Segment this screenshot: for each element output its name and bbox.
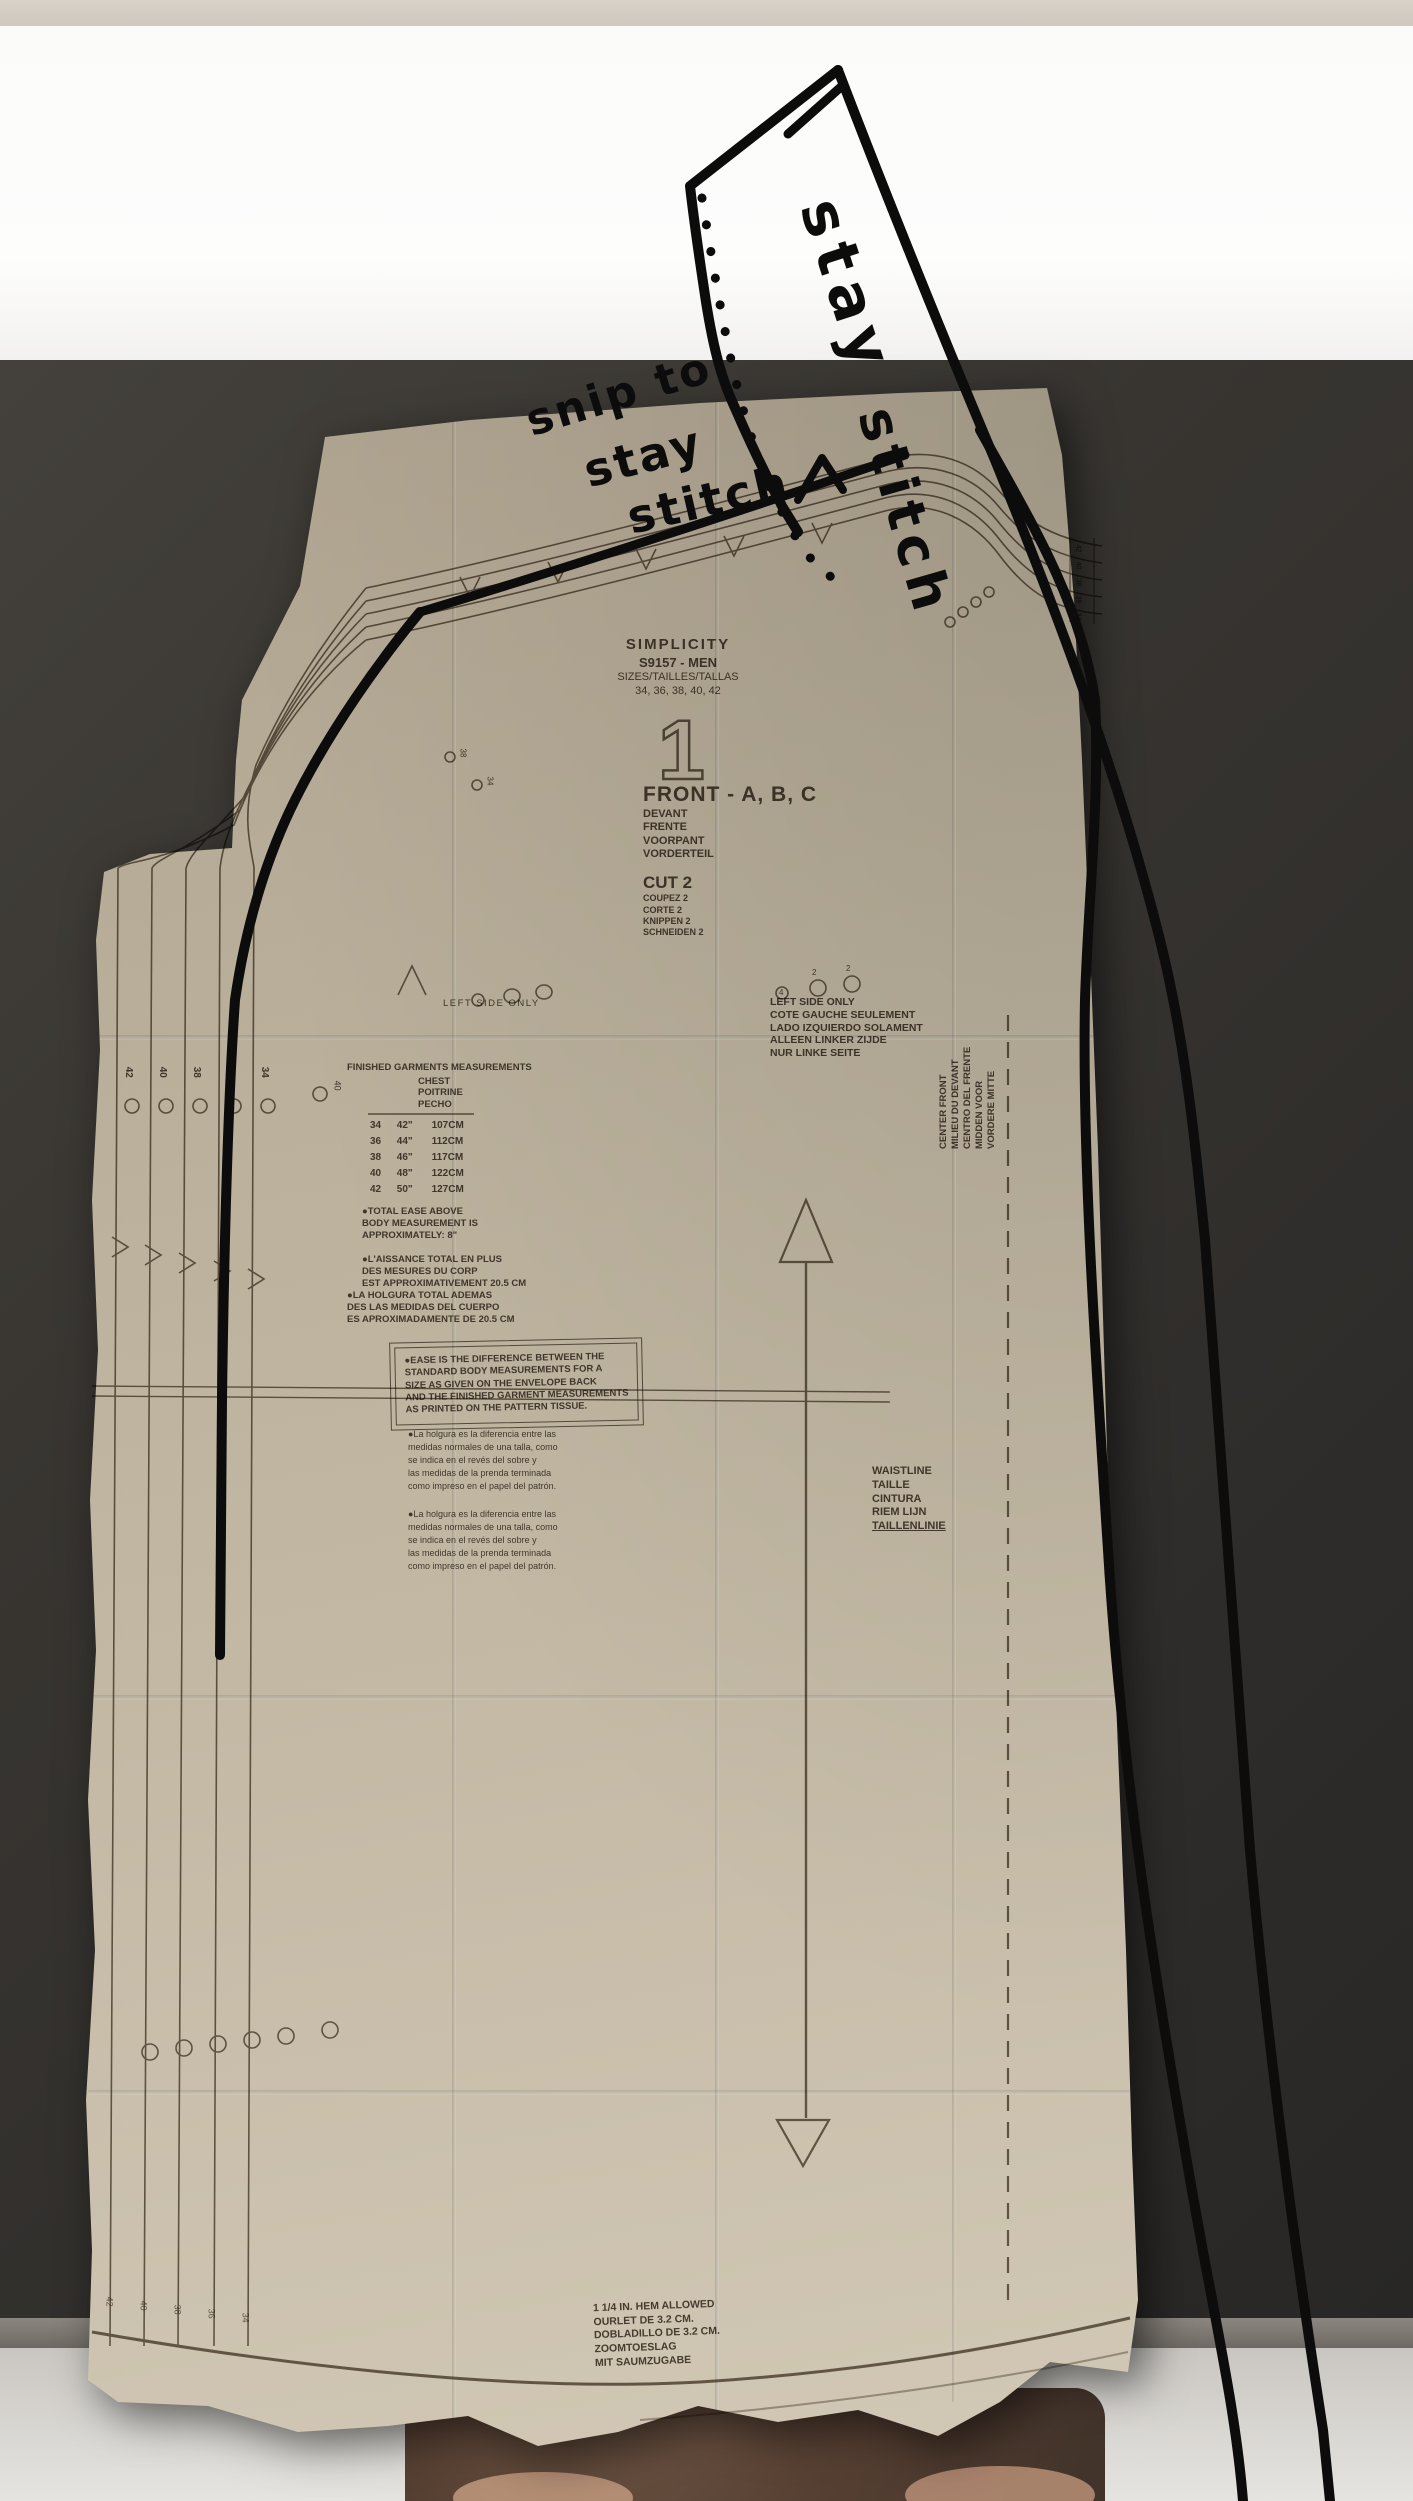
photo-scene: SIMPLICITY S9157 - MEN SIZES/TAILLES/TAL…	[0, 0, 1413, 2501]
long-line-left	[980, 430, 1243, 2501]
snip-arrow	[798, 458, 843, 500]
armhole-trace	[220, 612, 420, 1655]
